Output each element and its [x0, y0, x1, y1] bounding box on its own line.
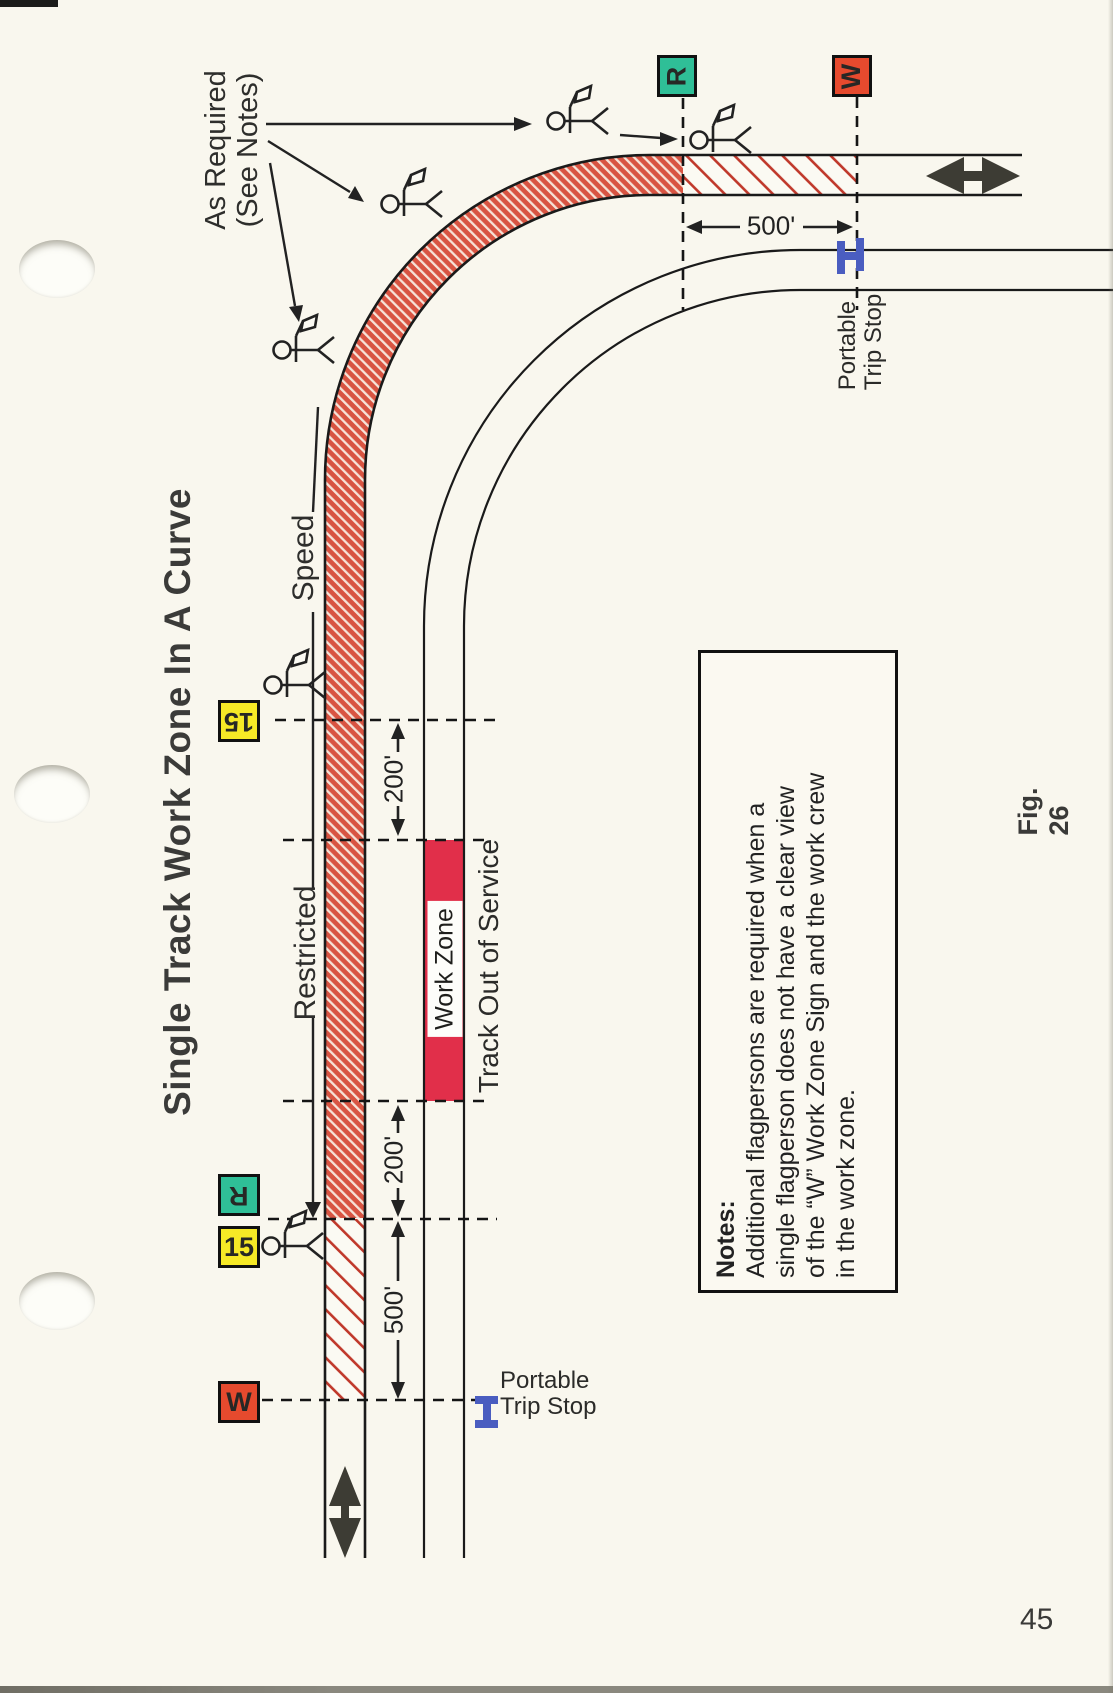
- page-title: Single Track Work Zone In A Curve: [157, 488, 199, 1116]
- dimension-500ft-bottom: 500': [379, 1286, 410, 1334]
- work-zone-bar-label: Work Zone: [428, 901, 463, 1037]
- portable-trip-stop-symbol-bottom: [475, 1396, 498, 1428]
- portable-trip-stop-label-top: Portable Trip Stop: [835, 294, 887, 390]
- scan-edge-right: [1108, 0, 1113, 1693]
- two-way-traffic-arrow-bottom: [329, 1466, 361, 1558]
- track-out-of-service-label: Track Out of Service: [473, 839, 505, 1093]
- binder-hole: [14, 765, 90, 823]
- two-way-traffic-arrow-top: [926, 157, 1020, 194]
- speed-15-sign-upper: 15: [218, 700, 260, 742]
- notes-text: Notes: Additional flagpersons are requir…: [701, 653, 895, 1290]
- sign-letter: R: [229, 1180, 249, 1211]
- flagperson-icon: [382, 169, 443, 217]
- approach-hatch-bottom: [325, 1219, 365, 1400]
- flagperson-icon: [274, 315, 335, 363]
- scan-edge-mark: [0, 0, 58, 7]
- sign-number: 15: [224, 1232, 254, 1263]
- as-required-label: As Required (See Notes): [200, 70, 264, 230]
- sign-letter: R: [662, 66, 693, 86]
- figure-label: Fig. 26: [1013, 767, 1075, 836]
- dimension-500ft-top: 500': [747, 211, 795, 242]
- dimension-200ft-lower: 200': [379, 1136, 410, 1184]
- sign-letter: W: [226, 1387, 251, 1418]
- notes-box: Notes: Additional flagpersons are requir…: [698, 650, 898, 1293]
- speed-label: Speed: [287, 515, 321, 602]
- restricted-speed-sign-bottom: R: [218, 1174, 260, 1216]
- sign-letter: W: [836, 63, 867, 88]
- restricted-speed-sign-top: R: [657, 55, 697, 97]
- dimension-200ft-upper: 200': [379, 755, 410, 803]
- portable-trip-stop-label-bottom: Portable Trip Stop: [500, 1368, 596, 1420]
- notes-heading: Notes:: [711, 665, 741, 1278]
- scan-edge-bottom: [0, 1686, 1113, 1693]
- notes-body: Additional flagpersons are required when…: [741, 665, 861, 1278]
- binder-hole: [19, 1272, 95, 1330]
- work-zone-sign-top: W: [832, 55, 872, 97]
- sign-number: 15: [224, 706, 254, 737]
- page-number: 45: [1020, 1603, 1053, 1637]
- speed-15-sign-lower: 15: [218, 1226, 260, 1268]
- flagperson-icon: [548, 86, 609, 134]
- approach-hatch-top: [683, 156, 857, 196]
- flagperson-icon: [691, 105, 752, 153]
- restricted-label: Restricted: [289, 885, 323, 1020]
- scanned-manual-page: R W 15 R 15 W Single Track Work Zone In …: [0, 0, 1113, 1693]
- binder-hole: [19, 240, 95, 298]
- portable-trip-stop-symbol-top: [837, 238, 864, 274]
- flagperson-icon: [265, 650, 326, 698]
- restricted-zone-hatch: [345, 175, 683, 1218]
- work-zone-sign-bottom: W: [218, 1381, 260, 1423]
